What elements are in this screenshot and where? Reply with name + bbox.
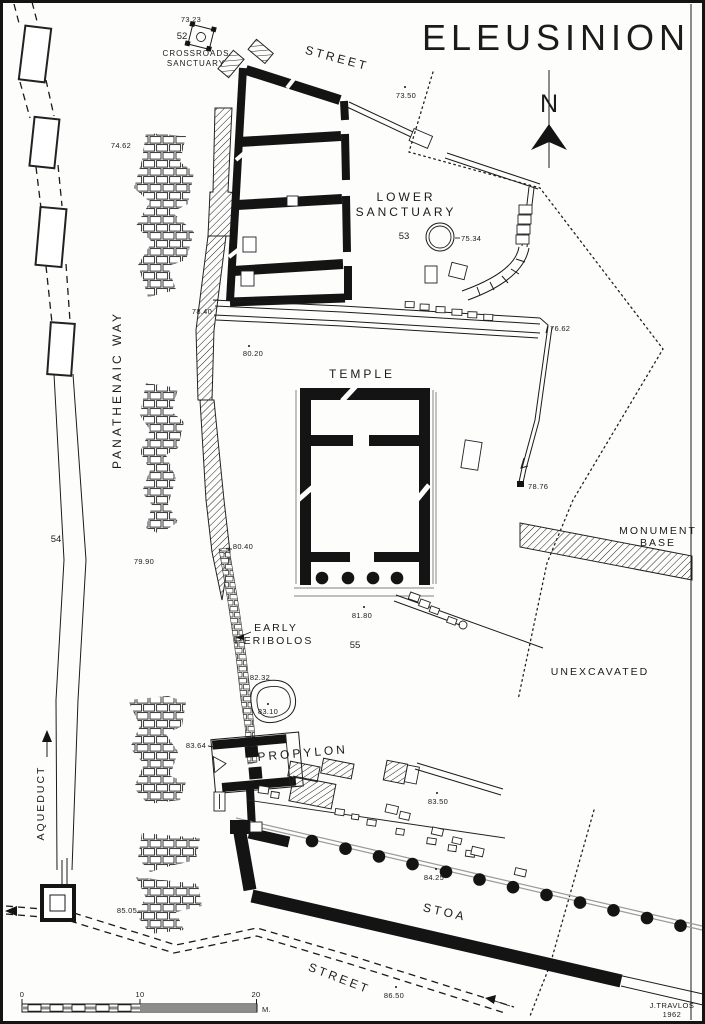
aqueduct-label: AQUEDUCT xyxy=(35,766,47,841)
courtyard: 81.80 55 MONUMENT BASE UNEXCAVATED xyxy=(350,523,697,678)
column-drum xyxy=(459,621,467,629)
elev-marker xyxy=(435,868,437,870)
credit: J.TRAVLOS 1962 xyxy=(650,1001,695,1019)
elev-83-10: 83.10 xyxy=(258,707,278,716)
elev-83-64: 83.64 xyxy=(186,741,206,750)
elev-73-23: 73.23 xyxy=(181,15,201,24)
temple: TEMPLE xyxy=(294,367,482,596)
site-number-52: 52 xyxy=(177,31,188,42)
peribolos-wall xyxy=(219,548,257,764)
site-number-55: 55 xyxy=(350,640,361,651)
scale-ten: 10 xyxy=(136,990,145,999)
credit-author: J.TRAVLOS xyxy=(650,1001,695,1010)
scale-bar-ticks xyxy=(22,999,257,1004)
elev-marker xyxy=(436,792,438,794)
monument-base-label-2: BASE xyxy=(640,537,676,549)
scale-zero: 0 xyxy=(20,990,24,999)
sanctuary-base-2 xyxy=(449,262,468,279)
north-letter: N xyxy=(540,90,558,118)
street-arrow-head xyxy=(485,995,496,1004)
credit-year: 1962 xyxy=(663,1010,682,1019)
crossroads-label-1: CROSSROADS xyxy=(163,49,230,58)
elev-marker xyxy=(267,703,269,705)
temple-altar-base xyxy=(461,440,482,470)
propylon-hatched-bases xyxy=(288,758,408,809)
temple-label: TEMPLE xyxy=(329,367,395,381)
temple-walls xyxy=(300,388,430,585)
panathenaic-way-label: PANATHENAIC WAY xyxy=(110,311,124,469)
scale-bar: 0 10 20 M. xyxy=(20,990,271,1014)
drain-east xyxy=(519,326,552,483)
elev-82-32: 82.32 xyxy=(250,673,270,682)
propylon-notch xyxy=(213,756,226,773)
north-arrow: N xyxy=(531,70,567,168)
monument-base-label-1: MONUMENT xyxy=(619,525,697,537)
elev-74-62: 74.62 xyxy=(111,141,131,150)
stone-arc xyxy=(462,247,529,300)
elev-marker xyxy=(404,86,406,88)
boundary-south xyxy=(530,810,594,1016)
aqueduct-channel xyxy=(54,374,86,886)
frame-border xyxy=(2,2,704,1023)
elev-81-80: 81.80 xyxy=(352,611,372,620)
elev-84-25: 84.25 xyxy=(424,873,444,882)
temple-wall-breaks xyxy=(298,386,429,507)
aqueduct-end-manhole xyxy=(42,886,74,920)
unexcavated-label: UNEXCAVATED xyxy=(551,666,649,678)
propylon-pier-2 xyxy=(248,766,262,779)
well-inner xyxy=(429,226,451,248)
well-outer xyxy=(426,223,454,251)
drain-end xyxy=(517,481,524,487)
temple-porch-columns xyxy=(316,572,404,585)
street-top-label: STREET xyxy=(304,43,371,73)
lower-sanctuary: LOWER SANCTUARY 53 75.34 xyxy=(356,187,534,300)
scale-bar-right-fill xyxy=(140,1005,257,1011)
temple-platform-gray xyxy=(294,390,436,596)
crossroads-label-2: SANCTUARY xyxy=(167,59,225,68)
crossroads-sanctuary: 73.23 52 CROSSROADS SANCTUARY xyxy=(163,15,230,68)
terrace-lines xyxy=(213,300,548,338)
elev-marker xyxy=(248,345,250,347)
stoa-nw-notch xyxy=(250,822,262,832)
elev-76-62: 76.62 xyxy=(550,324,570,333)
elev-86-50: 86.50 xyxy=(384,991,404,1000)
retaining-wall-hatch xyxy=(196,39,273,600)
map-frame xyxy=(2,2,704,1023)
header: ELEUSINION N xyxy=(422,17,690,168)
aqueduct-arrow-head xyxy=(42,730,52,742)
elev-83-50: 83.50 xyxy=(428,797,448,806)
site-number-54: 54 xyxy=(51,534,62,545)
elev-80-20: 80.20 xyxy=(243,349,263,358)
elev-80-40: 80.40 xyxy=(233,542,253,551)
stoa-front-stones xyxy=(378,804,534,877)
street-top-walls xyxy=(347,102,540,189)
aqueduct-manholes xyxy=(19,26,75,376)
early-peribolos-label-2: PERIBOLOS xyxy=(235,635,314,647)
scale-twenty: 20 xyxy=(252,990,261,999)
lower-sanctuary-label-1: LOWER xyxy=(376,190,435,204)
sanctuary-base-1 xyxy=(425,266,437,283)
stoa-nw-corner xyxy=(230,820,250,834)
stoa-label: STOA xyxy=(422,900,468,924)
street-top: STREET 73.50 xyxy=(304,43,540,189)
terrace-line-south xyxy=(247,800,505,838)
elev-73-50: 73.50 xyxy=(396,91,416,100)
scale-unit: M. xyxy=(262,1005,271,1014)
propylon-east-block xyxy=(404,765,419,784)
lower-sanctuary-label-2: SANCTUARY xyxy=(356,205,457,219)
elev-75-34: 75.34 xyxy=(461,234,481,243)
boundary-north xyxy=(409,72,663,700)
stoa: 84.25 STOA xyxy=(230,804,703,1005)
elev-marker xyxy=(363,606,365,608)
early-peribolos-label-1: EARLY xyxy=(254,622,298,634)
early-peribolos: EARLY PERIBOLOS 80.40 82.32 83.10 xyxy=(219,542,313,764)
north-building xyxy=(229,68,348,302)
elev-78-76: 78.76 xyxy=(528,482,548,491)
elev-78-40: 78.40 xyxy=(192,307,212,316)
crossroads-enclosure xyxy=(185,21,217,52)
elev-79-90: 79.90 xyxy=(134,557,154,566)
site-plan: ELEUSINION N xyxy=(0,0,705,1024)
street-bottom-label: STREET xyxy=(306,960,372,996)
elev-85-05: 85.05 xyxy=(117,906,137,915)
page-title: ELEUSINION xyxy=(422,17,690,58)
site-number-53: 53 xyxy=(399,231,410,242)
elev-marker xyxy=(395,986,397,988)
courtyard-drain xyxy=(394,595,543,648)
north-building-walls xyxy=(230,68,348,302)
way-masonry xyxy=(128,133,202,934)
east-wall-lines xyxy=(415,763,503,795)
